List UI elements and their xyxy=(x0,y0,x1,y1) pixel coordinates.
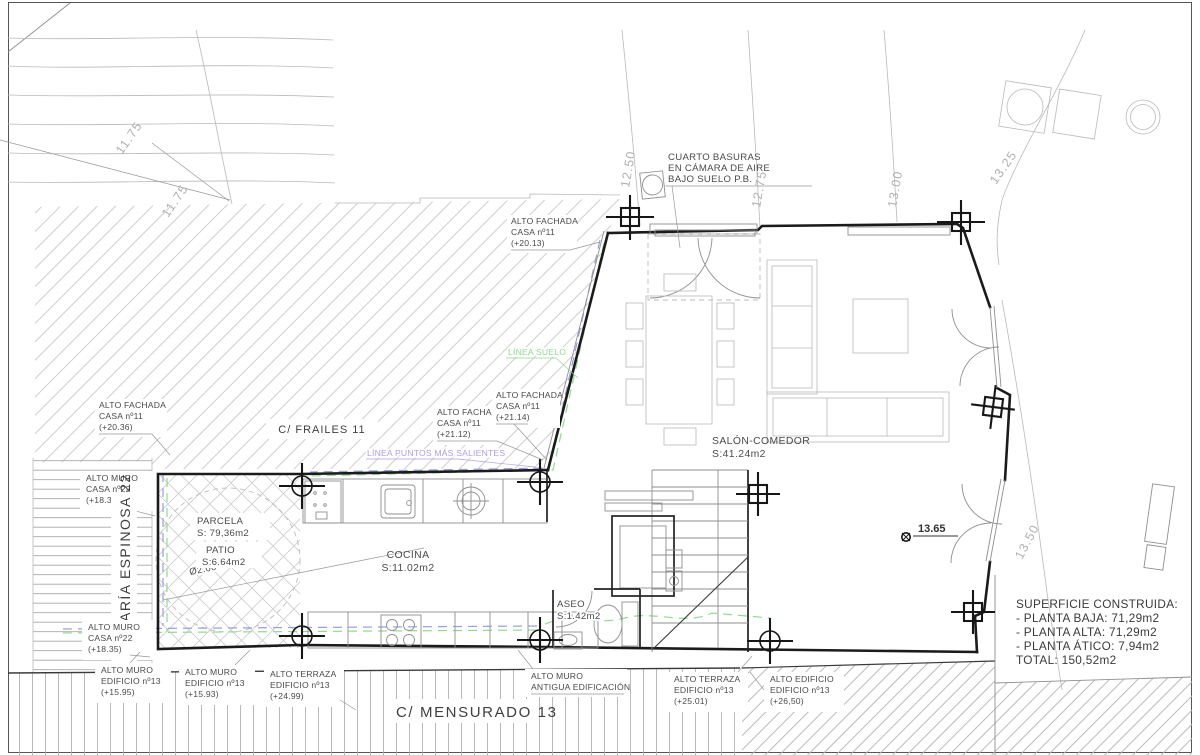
svg-text:LÍNEA SUELO: LÍNEA SUELO xyxy=(508,347,566,357)
column-marker-circle xyxy=(517,617,563,663)
summary-block: SUPERFICIE CONSTRUIDA: - PLANTA BAJA: 71… xyxy=(1016,597,1178,667)
svg-text:- PLANTA BAJA: 71,29m2: - PLANTA BAJA: 71,29m2 xyxy=(1016,611,1159,625)
label-street-frailes: C/ FRAILES 11 xyxy=(266,419,378,439)
aseo-room xyxy=(547,470,640,649)
svg-text:ALTO MURO: ALTO MURO xyxy=(531,671,583,681)
chair xyxy=(626,341,643,367)
svg-text:LÍNEA PUNTOS MÁS SALIENTES: LÍNEA PUNTOS MÁS SALIENTES xyxy=(367,448,505,458)
svg-text:EDIFICIO nº13: EDIFICIO nº13 xyxy=(270,680,330,690)
svg-text:ALTO TERRAZA: ALTO TERRAZA xyxy=(270,669,336,679)
svg-text:ALTO FACHADA: ALTO FACHADA xyxy=(99,400,166,410)
svg-text:(+25.01): (+25.01) xyxy=(674,696,708,706)
contour-label-13-25: 13.25 xyxy=(987,148,1020,187)
svg-text:CASA nº11: CASA nº11 xyxy=(437,418,481,428)
label-terraza-24-99: ALTO TERRAZA EDIFICIO nº13 (+24.99) xyxy=(264,667,356,710)
coffee-table xyxy=(853,299,908,353)
chair xyxy=(664,428,696,445)
elevator xyxy=(605,491,693,596)
spot-level-13-65: 13.65 xyxy=(902,523,958,541)
svg-text:13.65: 13.65 xyxy=(918,523,946,535)
svg-text:EN CÁMARA DE AIRE: EN CÁMARA DE AIRE xyxy=(668,163,770,174)
contour-label-13-00: 13.00 xyxy=(885,169,905,208)
kitchen-counter-top xyxy=(303,479,547,523)
svg-text:(+24.99): (+24.99) xyxy=(270,691,304,701)
svg-text:SALÓN-COMEDOR: SALÓN-COMEDOR xyxy=(712,434,810,447)
label-room-cocina: COCINA S:11.02m2 xyxy=(381,550,434,574)
sofa-vertical xyxy=(767,260,817,394)
column-marker-box xyxy=(736,472,780,516)
svg-text:ALTO MURO: ALTO MURO xyxy=(185,667,237,677)
window-sill-top xyxy=(848,227,950,235)
label-edificio-26-50: ALTO EDIFICIO EDIFICIO nº13 (+26,50) xyxy=(750,672,844,712)
svg-text:TOTAL: 150,52m2: TOTAL: 150,52m2 xyxy=(1016,653,1116,667)
svg-text:CASA nº11: CASA nº11 xyxy=(99,411,143,421)
floor-plan-page: 11.75 11.75 12.50 12.75 13.00 13.25 13.5… xyxy=(0,0,1200,755)
wall-top xyxy=(608,224,957,233)
svg-text:EDIFICIO nº13: EDIFICIO nº13 xyxy=(770,685,830,695)
svg-text:(+18.35): (+18.35) xyxy=(88,644,122,654)
contour-label-12-50: 12.50 xyxy=(618,149,638,188)
label-muro-15-93: ALTO MURO EDIFICIO nº13 (+15.93) xyxy=(179,650,255,705)
svg-text:S: 79,36m2: S: 79,36m2 xyxy=(197,528,249,539)
svg-text:ANTIGUA EDIFICACIÓN: ANTIGUA EDIFICACIÓN xyxy=(531,682,630,692)
svg-text:ALTO MURO: ALTO MURO xyxy=(88,622,140,632)
bench-right xyxy=(1141,484,1174,570)
svg-text:(+26,50): (+26,50) xyxy=(770,696,804,706)
label-muro-antigua: ALTO MURO ANTIGUA EDIFICACIÓN xyxy=(518,650,630,697)
column-marker-box xyxy=(951,590,995,634)
svg-text:SUPERFICIE CONSTRUIDA:: SUPERFICIE CONSTRUIDA: xyxy=(1016,597,1178,611)
label-room-aseo: ASEO S:1.42m2 xyxy=(557,599,600,622)
svg-text:S:6.64m2: S:6.64m2 xyxy=(202,557,245,568)
label-room-parcela: PARCELA S: 79,36m2 xyxy=(190,513,270,540)
fridge-unit xyxy=(305,481,341,523)
svg-text:CASA nº22: CASA nº22 xyxy=(88,633,133,643)
chair xyxy=(717,341,734,367)
label-room-salon: SALÓN-COMEDOR S:41.24m2 xyxy=(712,434,810,460)
door-arc-2b xyxy=(951,523,991,563)
floor-plan-svg: 11.75 11.75 12.50 12.75 13.00 13.25 13.5… xyxy=(0,0,1200,755)
door-arc-1a xyxy=(952,309,991,348)
manhole-circle-top xyxy=(640,171,666,199)
label-terraza-25-01: ALTO TERRAZA EDIFICIO nº13 (+25.01) xyxy=(668,656,752,712)
svg-text:C/ MENSURADO 13: C/ MENSURADO 13 xyxy=(396,704,558,721)
svg-text:ALTO EDIFICIO: ALTO EDIFICIO xyxy=(770,674,834,684)
svg-text:PARCELA: PARCELA xyxy=(197,516,243,527)
svg-text:PATIO: PATIO xyxy=(206,545,235,556)
svg-text:(+20.36): (+20.36) xyxy=(99,422,133,432)
salon-furniture xyxy=(626,260,949,445)
svg-text:CUARTO BASURAS: CUARTO BASURAS xyxy=(668,152,761,163)
column-marker-circle xyxy=(747,618,793,664)
svg-text:S:41.24m2: S:41.24m2 xyxy=(712,449,766,460)
svg-text:ALTO TERRAZA: ALTO TERRAZA xyxy=(674,674,740,684)
svg-text:(+15.93): (+15.93) xyxy=(185,689,219,699)
svg-text:ASEO: ASEO xyxy=(557,599,585,610)
chair xyxy=(626,379,643,405)
dining-table xyxy=(646,296,712,424)
svg-text:S:1.42m2: S:1.42m2 xyxy=(557,611,600,622)
svg-text:EDIFICIO nº13: EDIFICIO nº13 xyxy=(101,676,161,686)
french-doors xyxy=(951,309,1002,563)
chair xyxy=(717,303,734,329)
svg-text:- PLANTA ÁTICO: 7,94m2: - PLANTA ÁTICO: 7,94m2 xyxy=(1016,639,1159,653)
svg-text:ALTO FACHADA: ALTO FACHADA xyxy=(511,216,578,226)
svg-text:S:11.02m2: S:11.02m2 xyxy=(381,563,434,574)
chair xyxy=(626,303,643,329)
svg-text:BAJO SUELO P.B.: BAJO SUELO P.B. xyxy=(668,174,752,185)
label-room-patio: PATIO S:6.64m2 xyxy=(196,542,262,568)
elevator-shaft xyxy=(612,516,674,596)
svg-text:ALTO FACHADA: ALTO FACHADA xyxy=(496,390,563,400)
contour-label-13-50: 13.50 xyxy=(1012,522,1042,561)
well-circle xyxy=(1126,100,1160,134)
label-muro-18-35: ALTO MURO CASA nº22 (+18.35) xyxy=(82,620,156,660)
svg-text:COCINA: COCINA xyxy=(387,550,430,561)
trash-room xyxy=(648,224,760,300)
svg-text:- PLANTA ALTA: 71,29m2: - PLANTA ALTA: 71,29m2 xyxy=(1016,625,1157,639)
manhole-square-circle xyxy=(999,81,1052,134)
manhole-square xyxy=(1053,89,1101,139)
svg-text:(+15.95): (+15.95) xyxy=(101,687,135,697)
door-arc-1b xyxy=(960,347,999,386)
svg-text:(+21.14): (+21.14) xyxy=(496,412,530,422)
svg-text:ALTO MURO: ALTO MURO xyxy=(101,665,153,675)
svg-text:(+21.12): (+21.12) xyxy=(437,429,471,439)
label-street-mensurado: C/ MENSURADO 13 xyxy=(388,699,558,723)
chair xyxy=(717,379,734,405)
svg-text:(+20.13): (+20.13) xyxy=(511,238,545,248)
column-marker-box xyxy=(937,200,985,245)
svg-text:EDIFICIO nº13: EDIFICIO nº13 xyxy=(674,685,734,695)
sofa-horizontal xyxy=(767,392,949,442)
svg-text:CASA nº11: CASA nº11 xyxy=(511,227,555,237)
svg-text:CASA nº11: CASA nº11 xyxy=(496,401,540,411)
svg-text:C/ FRAILES 11: C/ FRAILES 11 xyxy=(278,424,365,436)
svg-text:EDIFICIO nº13: EDIFICIO nº13 xyxy=(185,678,245,688)
